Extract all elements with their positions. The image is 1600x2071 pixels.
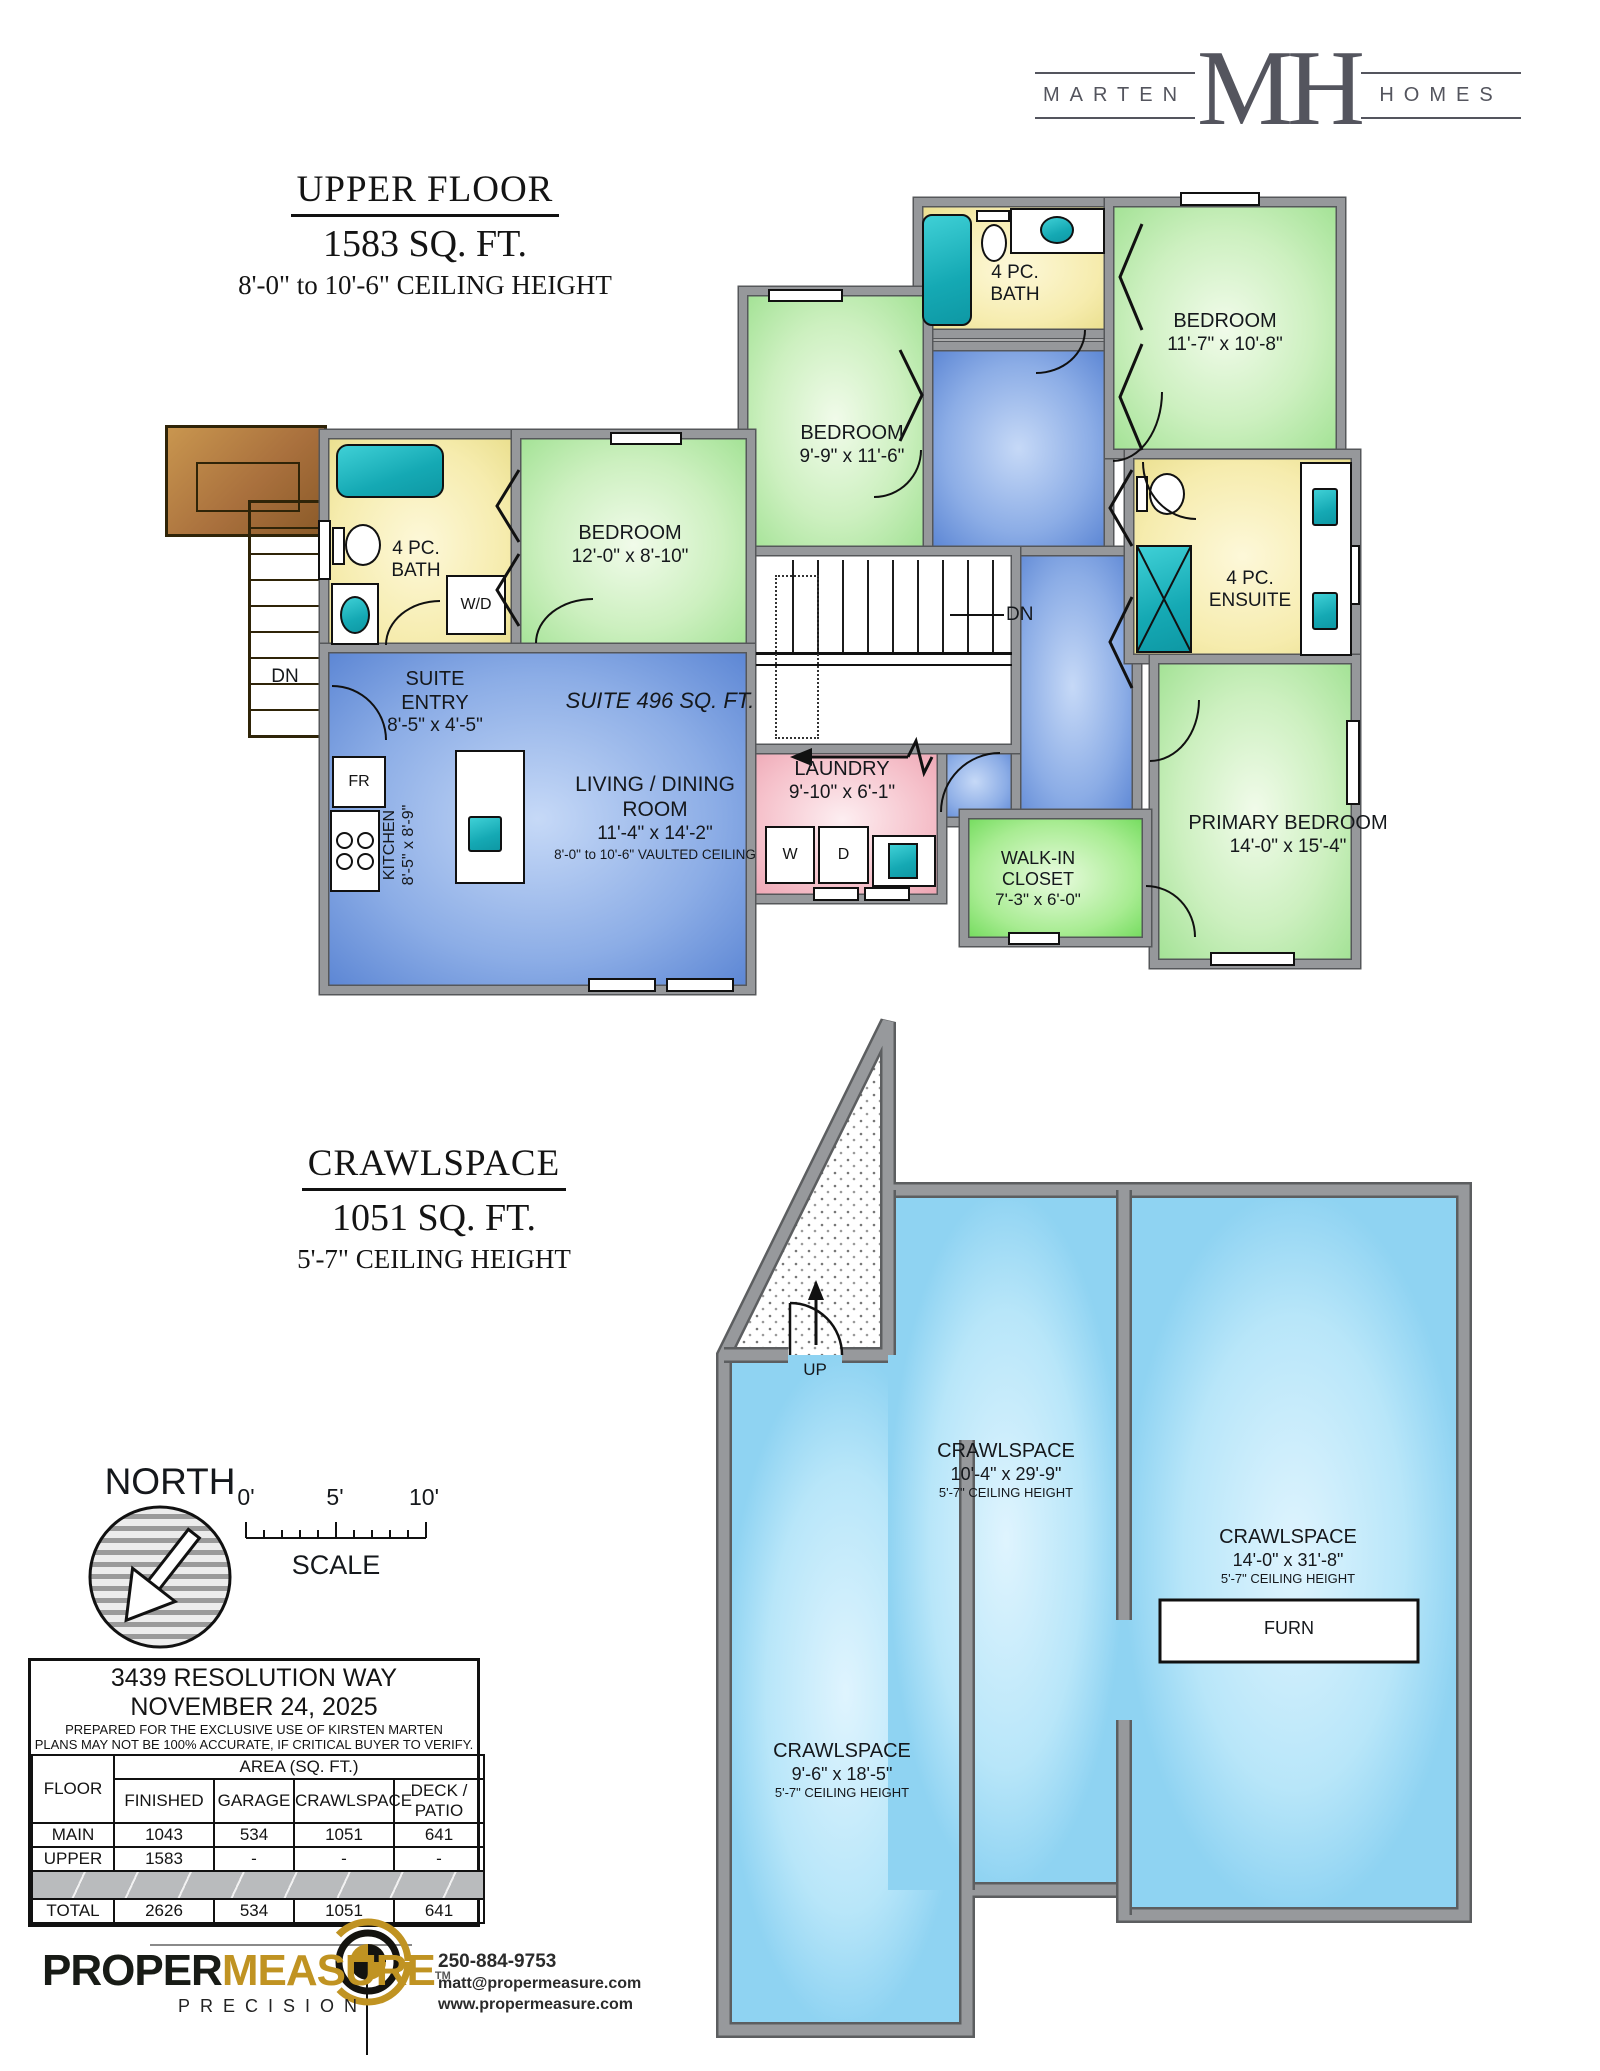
toilet-tank-icon bbox=[332, 527, 345, 565]
north-compass-icon bbox=[85, 1502, 235, 1652]
closet-doors-icon bbox=[1118, 222, 1144, 452]
closet-doors-icon bbox=[495, 468, 521, 628]
dn-leader-line bbox=[950, 614, 1004, 616]
sink-icon bbox=[1312, 592, 1338, 630]
propermeasure-measure: MEASURE bbox=[222, 1946, 435, 1995]
sink-icon bbox=[1040, 216, 1074, 244]
label-bedroom-middle: BEDROOM 9'-9" x 11'-6" bbox=[762, 422, 942, 468]
col-crawlspace: CRAWLSPACE bbox=[294, 1779, 394, 1823]
website-url: www.propermeasure.com bbox=[438, 1995, 641, 2015]
table-row-spacer bbox=[32, 1871, 484, 1899]
mh-monogram-icon: MH bbox=[1197, 40, 1359, 137]
window bbox=[813, 887, 859, 901]
email-address: matt@propermeasure.com bbox=[438, 1974, 641, 1994]
upper-floor-title: UPPER FLOOR bbox=[291, 168, 560, 217]
phone-number: 250-884-9753 bbox=[438, 1950, 641, 1974]
label-crawl-left: CRAWLSPACE 9'-6" x 18'-5" 5'-7" CEILING … bbox=[752, 1740, 932, 1800]
stair-open-below-outline bbox=[775, 575, 819, 739]
upper-floor-area: 1583 SQ. FT. bbox=[180, 222, 670, 266]
label-bath-left: 4 PC. BATH bbox=[361, 538, 471, 583]
washer-box: W bbox=[765, 826, 815, 884]
floor-plan-page: UPPER FLOOR 1583 SQ. FT. 8'-0" to 10'-6"… bbox=[0, 0, 1600, 2071]
window bbox=[1008, 932, 1060, 945]
window bbox=[610, 432, 682, 445]
label-suite-area: SUITE 496 SQ. FT. bbox=[555, 688, 765, 714]
upper-floor-ceiling: 8'-0" to 10'-6" CEILING HEIGHT bbox=[180, 270, 670, 301]
label-crawl-right: CRAWLSPACE 14'-0" x 31'-8" 5'-7" CEILING… bbox=[1188, 1526, 1388, 1586]
label-bath-top: 4 PC. BATH bbox=[960, 262, 1070, 307]
label-bedroom-top-right: BEDROOM 11'-7" x 10'-8" bbox=[1145, 310, 1305, 356]
propermeasure-wordmark: PROPERMEASURETM bbox=[42, 1946, 451, 1996]
stairs-dn-label: DN bbox=[1006, 604, 1076, 626]
closet-doors-icon bbox=[1108, 468, 1134, 548]
washer-label: W bbox=[782, 846, 797, 864]
col-garage: GARAGE bbox=[214, 1779, 294, 1823]
label-crawl-mid: CRAWLSPACE 10'-4" x 29'-9" 5'-7" CEILING… bbox=[916, 1440, 1096, 1500]
label-suite-entry: SUITE ENTRY 8'-5" x 4'-5" bbox=[375, 668, 495, 738]
toilet-tank-icon bbox=[976, 210, 1010, 222]
stair-risers-upper-flight bbox=[792, 560, 1012, 652]
table-row: UPPER 1583 - - - bbox=[32, 1847, 484, 1871]
scale-five-label: 5' bbox=[315, 1484, 355, 1511]
window bbox=[1210, 952, 1295, 966]
label-primary-bedroom: PRIMARY BEDROOM 14'-0" x 15'-4" bbox=[1188, 812, 1388, 858]
label-laundry: LAUNDRY 9'-10" x 6'-1" bbox=[752, 758, 932, 804]
label-up: UP bbox=[780, 1360, 850, 1380]
washer-dryer-label: W/D bbox=[460, 596, 491, 614]
address: 3439 RESOLUTION WAY bbox=[33, 1664, 475, 1693]
crawlspace-area: 1051 SQ. FT. bbox=[234, 1196, 634, 1240]
window bbox=[666, 978, 734, 992]
sink-icon bbox=[1312, 488, 1338, 526]
logo-marten-label: MARTEN bbox=[1035, 72, 1195, 119]
shower-icon bbox=[1136, 545, 1192, 653]
sink-icon bbox=[468, 816, 502, 852]
label-ensuite: 4 PC. ENSUITE bbox=[1195, 568, 1305, 613]
crawlspace-title: CRAWLSPACE bbox=[302, 1142, 566, 1191]
col-finished: FINISHED bbox=[114, 1779, 214, 1823]
scale-label: SCALE bbox=[280, 1550, 392, 1582]
label-bedroom-left: BEDROOM 12'-0" x 8'-10" bbox=[540, 522, 720, 568]
window bbox=[588, 978, 656, 992]
note-2: PLANS MAY NOT BE 100% ACCURATE, IF CRITI… bbox=[33, 1737, 475, 1752]
scale-ruler bbox=[240, 1516, 432, 1548]
label-kitchen: KITCHEN 8'-5" x 8'-9" bbox=[350, 745, 450, 945]
exterior-stair-run bbox=[248, 500, 327, 738]
label-furnace: FURN bbox=[1160, 1618, 1418, 1639]
window bbox=[318, 520, 331, 580]
table-row-total: TOTAL 2626 534 1051 641 bbox=[32, 1899, 484, 1923]
area-table-header: 3439 RESOLUTION WAY NOVEMBER 24, 2025 PR… bbox=[31, 1661, 477, 1754]
date: NOVEMBER 24, 2025 bbox=[33, 1693, 475, 1722]
sink-icon bbox=[340, 596, 370, 634]
closet-doors-icon bbox=[1108, 595, 1134, 690]
scale-ten-label: 10' bbox=[404, 1484, 444, 1511]
area-table: 3439 RESOLUTION WAY NOVEMBER 24, 2025 PR… bbox=[28, 1658, 480, 1927]
crawlspace-title-block: CRAWLSPACE 1051 SQ. FT. 5'-7" CEILING HE… bbox=[234, 1142, 634, 1275]
dryer-box: D bbox=[818, 826, 869, 884]
window bbox=[768, 289, 843, 302]
bathtub-icon bbox=[336, 444, 444, 498]
dryer-label: D bbox=[838, 846, 850, 864]
col-area-group: AREA (SQ. FT.) bbox=[114, 1755, 484, 1779]
logo-homes-label: HOMES bbox=[1361, 72, 1521, 119]
exterior-stairs-dn-label: DN bbox=[240, 666, 330, 688]
window bbox=[864, 887, 910, 901]
scale-zero-label: 0' bbox=[226, 1484, 266, 1511]
label-living-dining: LIVING / DINING ROOM 11'-4" x 14'-2" 8'-… bbox=[540, 773, 770, 863]
window bbox=[1180, 192, 1260, 206]
room-hallway-upper bbox=[924, 342, 1113, 555]
table-row: MAIN 1043 534 1051 641 bbox=[32, 1823, 484, 1847]
crawlspace-ceiling: 5'-7" CEILING HEIGHT bbox=[234, 1244, 634, 1275]
window bbox=[1346, 720, 1360, 805]
sink-icon bbox=[888, 843, 918, 879]
propermeasure-proper: PROPER bbox=[42, 1946, 222, 1995]
area-grid: FLOOR AREA (SQ. FT.) FINISHED GARAGE CRA… bbox=[31, 1754, 485, 1924]
note-1: PREPARED FOR THE EXCLUSIVE USE OF KIRSTE… bbox=[33, 1722, 475, 1737]
propermeasure-precision: PRECISION bbox=[178, 1996, 367, 2017]
col-floor: FLOOR bbox=[32, 1755, 114, 1823]
toilet-bowl-icon bbox=[981, 224, 1007, 262]
upper-floor-title-block: UPPER FLOOR 1583 SQ. FT. 8'-0" to 10'-6"… bbox=[180, 168, 670, 301]
propermeasure-contact: 250-884-9753 matt@propermeasure.com www.… bbox=[438, 1950, 641, 2015]
marten-homes-logo: MARTEN MH HOMES bbox=[1035, 40, 1521, 137]
label-walkin-closet: WALK-IN CLOSET 7'-3" x 6'-0" bbox=[958, 848, 1118, 911]
